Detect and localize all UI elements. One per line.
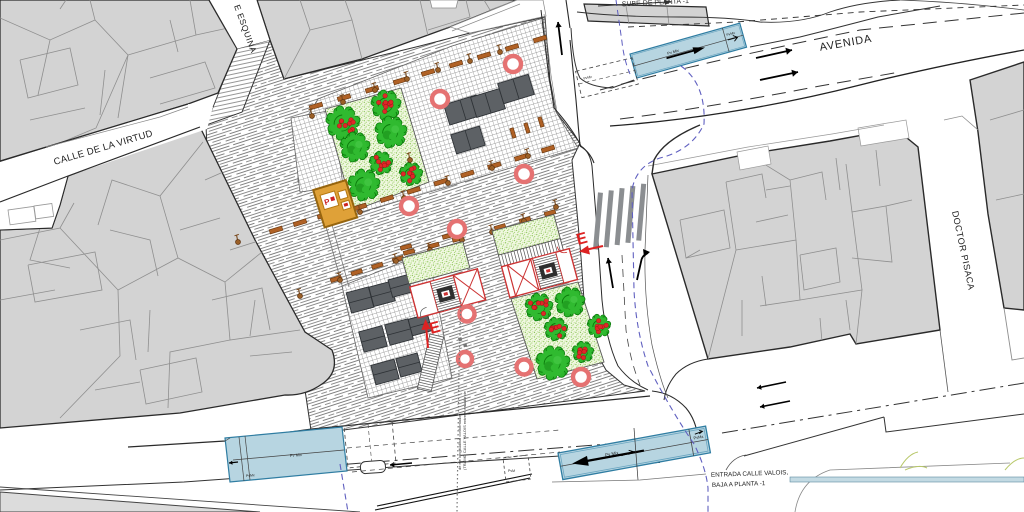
svg-text:(TRAMO CALLE VALOIS entre el e: (TRAMO CALLE VALOIS entre el estudio de: [462, 390, 467, 470]
svg-text:Pv Mix: Pv Mix: [290, 452, 302, 458]
svg-text:PvM: PvM: [508, 469, 515, 473]
svg-text:de eje longitudinal conformado: de eje longitudinal conformado: [457, 415, 462, 470]
svg-text:PvMx: PvMx: [246, 473, 255, 478]
